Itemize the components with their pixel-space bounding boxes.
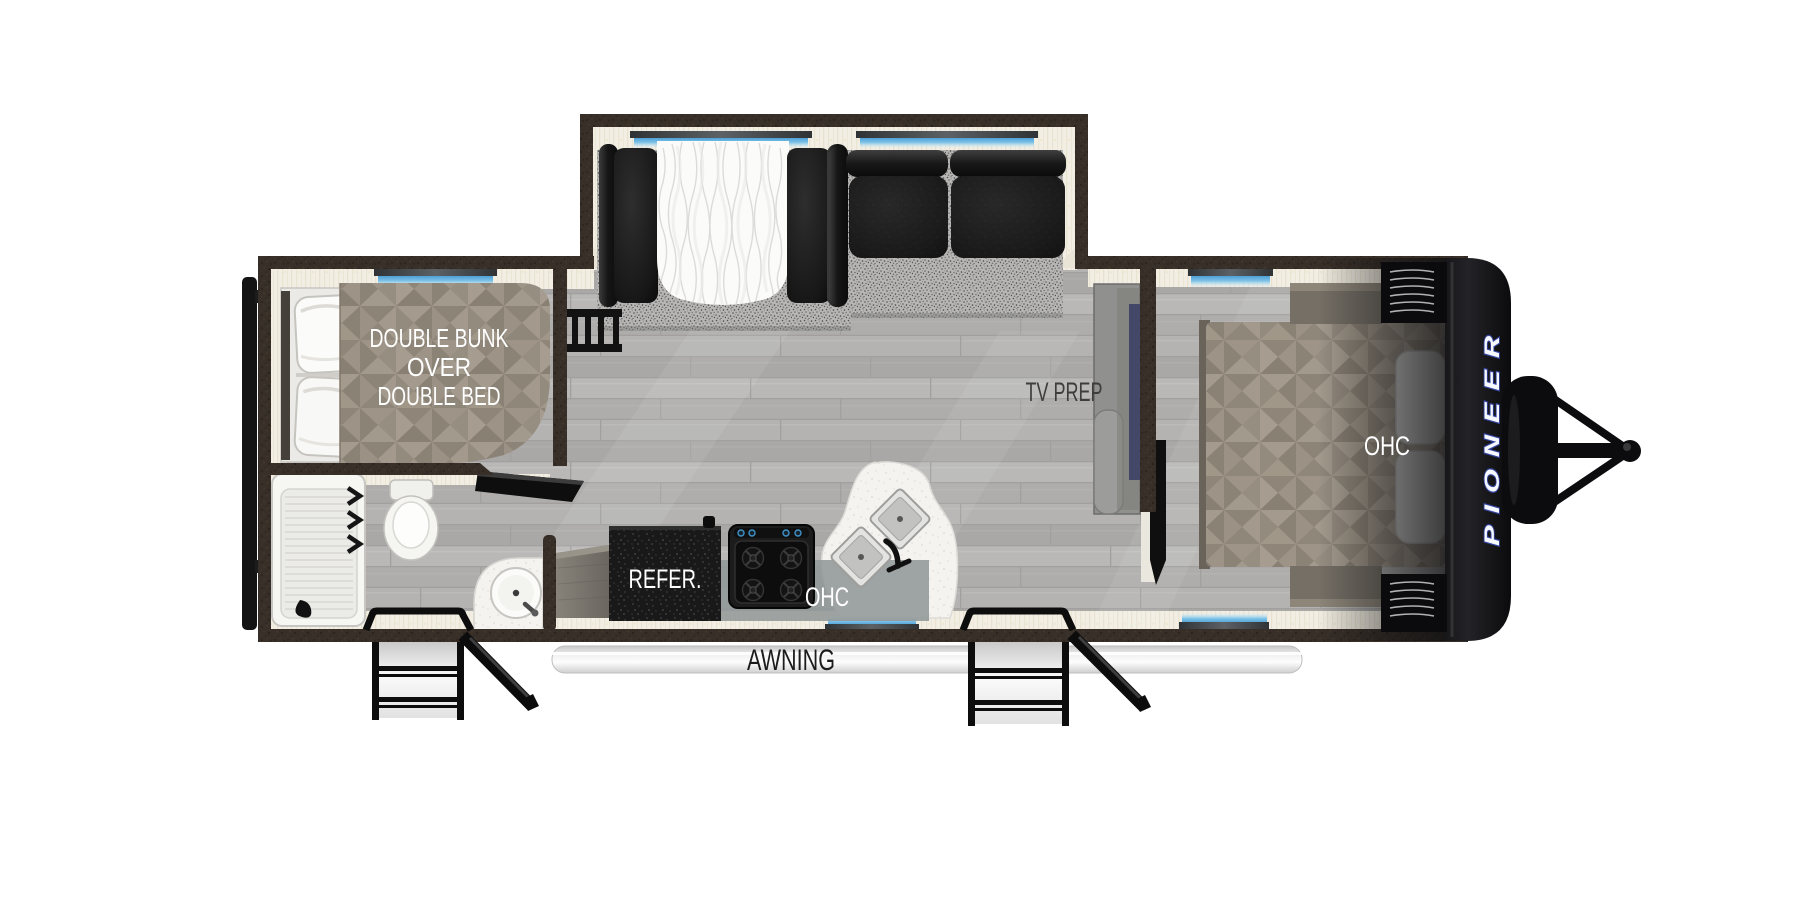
svg-text:OVER: OVER: [407, 352, 471, 382]
svg-text:OHC: OHC: [805, 582, 849, 612]
svg-text:TV PREP: TV PREP: [1026, 377, 1103, 407]
svg-text:DOUBLE BUNK: DOUBLE BUNK: [370, 323, 509, 353]
svg-text:DOUBLE BED: DOUBLE BED: [378, 381, 501, 411]
svg-text:AWNING: AWNING: [747, 644, 835, 677]
svg-text:OHC: OHC: [1364, 431, 1410, 461]
svg-text:PIONEER: PIONEER: [1481, 324, 1504, 546]
svg-text:REFER.: REFER.: [629, 564, 702, 594]
